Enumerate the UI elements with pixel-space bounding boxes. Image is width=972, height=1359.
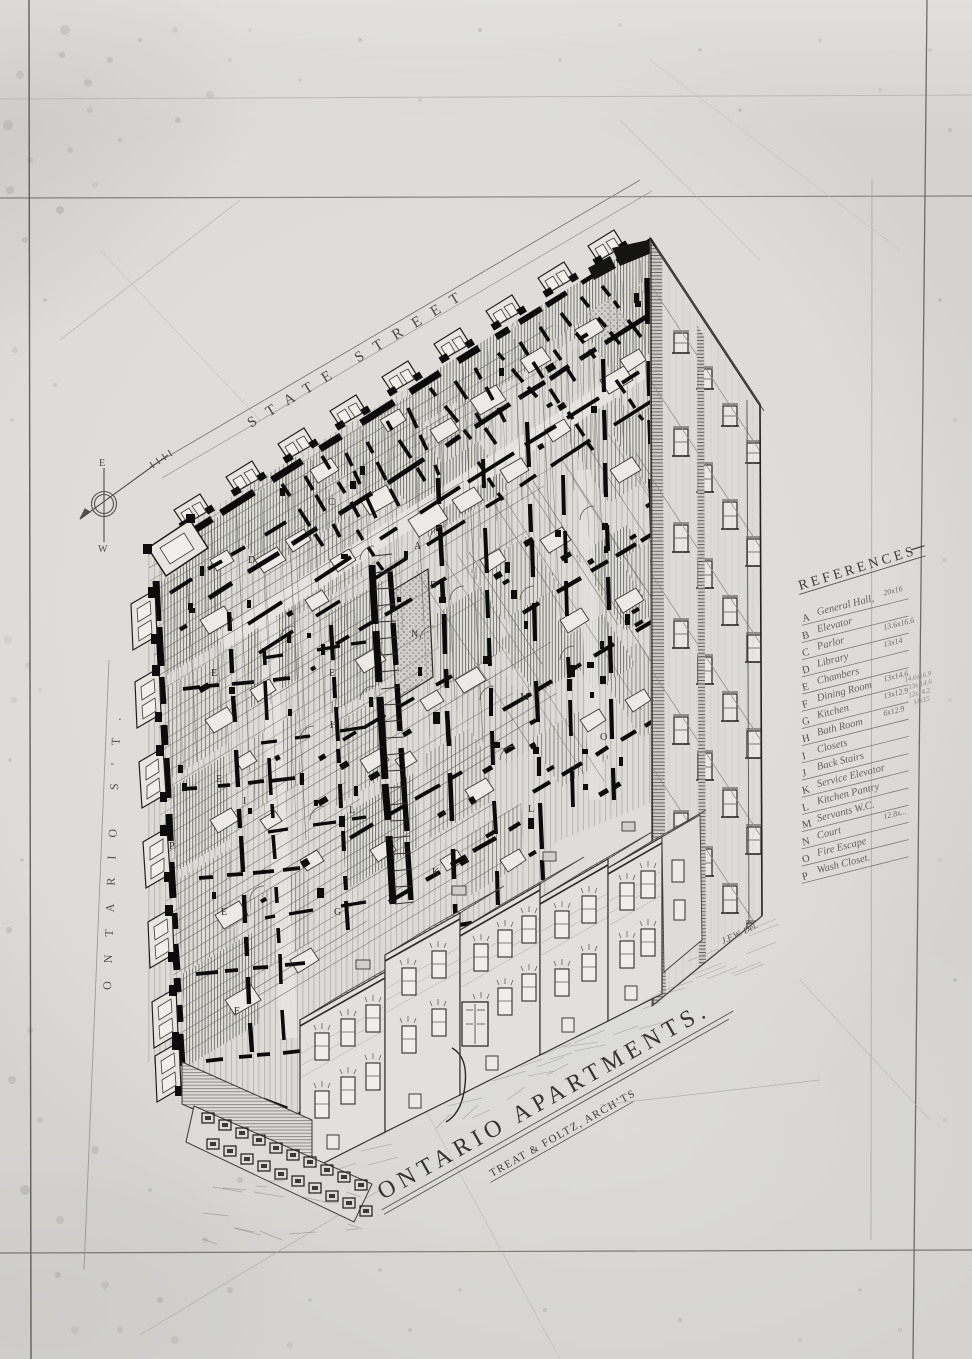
svg-text:G: G: [334, 907, 341, 918]
svg-text:E: E: [221, 907, 227, 918]
svg-text:M: M: [520, 692, 529, 703]
svg-text:P: P: [169, 841, 175, 852]
svg-text:C: C: [328, 497, 335, 508]
svg-text:I: I: [243, 796, 246, 807]
svg-text:F: F: [234, 1006, 240, 1017]
svg-text:B: B: [430, 580, 437, 591]
svg-text:H: H: [330, 720, 337, 731]
svg-text:E: E: [216, 774, 222, 785]
svg-text:W: W: [98, 544, 108, 555]
svg-text:A: A: [414, 541, 422, 552]
svg-text:O: O: [600, 732, 607, 743]
svg-text:N: N: [411, 629, 418, 640]
svg-text:E: E: [329, 668, 335, 679]
svg-text:L: L: [349, 805, 355, 816]
svg-text:E: E: [99, 458, 105, 469]
svg-text:E: E: [211, 668, 217, 679]
svg-text:K: K: [432, 867, 440, 878]
svg-text:D: D: [248, 555, 255, 566]
svg-text:L: L: [528, 804, 534, 815]
